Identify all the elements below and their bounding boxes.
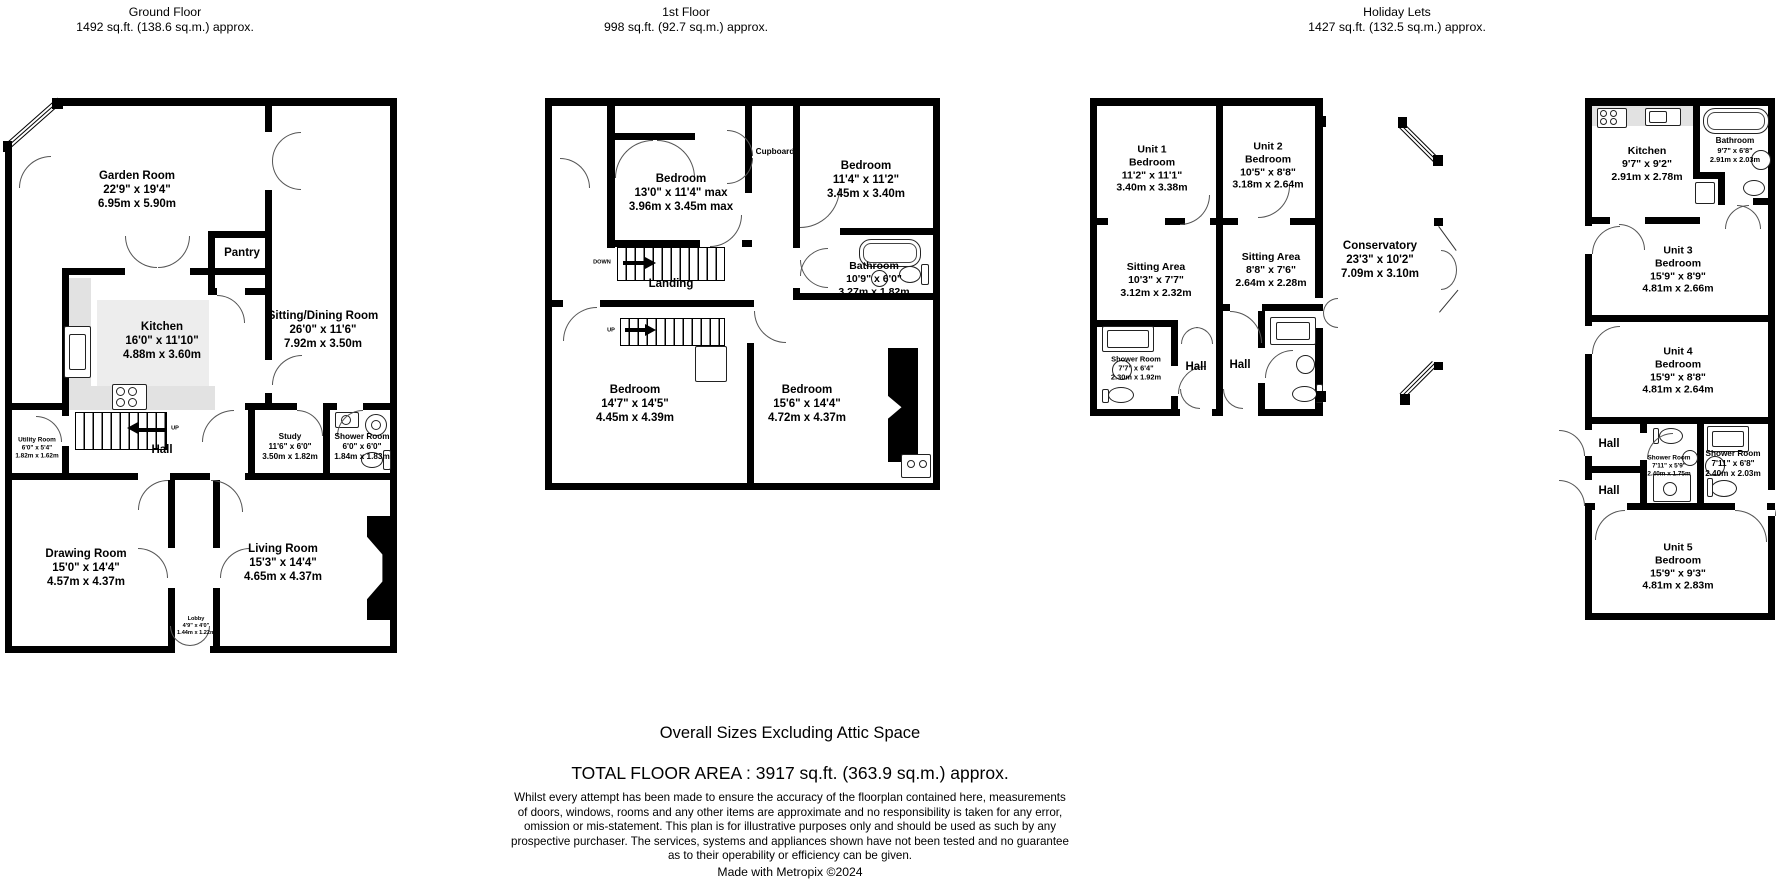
room-label-cupboard: Cupboard — [756, 147, 795, 157]
arrow-head — [645, 324, 656, 336]
wall — [840, 228, 940, 235]
fixture — [128, 398, 137, 407]
wall — [1768, 516, 1775, 620]
frame-line — [1439, 290, 1459, 313]
fixture — [1107, 330, 1149, 348]
wall — [5, 646, 170, 653]
room-label-study: Study11'6" x 6'0"3.50m x 1.82m — [262, 432, 318, 462]
first-floor-header: 1st Floor 998 sq.ft. (92.7 sq.m.) approx… — [526, 5, 846, 34]
post — [125, 98, 134, 106]
wall — [57, 98, 397, 106]
wall — [1090, 98, 1097, 416]
first-floor-plan: Bedroom13'0" x 11'4" max3.96m x 3.45m ma… — [545, 98, 940, 493]
door-arc — [800, 260, 828, 288]
fixture — [901, 454, 931, 478]
first-floor-area: 998 sq.ft. (92.7 sq.m.) approx. — [604, 20, 768, 34]
door-arc — [754, 311, 786, 343]
door-arc — [1735, 510, 1767, 542]
first-floor-title: 1st Floor — [662, 5, 710, 19]
room-label-bathroom-first: Bathroom10'9" x 6'0"3.27m x 1.82m — [838, 260, 909, 298]
ground-floor-title: Ground Floor — [129, 5, 201, 19]
wall — [137, 428, 165, 432]
wall — [545, 98, 552, 490]
fixture — [1610, 110, 1617, 117]
wall — [62, 446, 69, 473]
stairs-up-label-ground: UP — [171, 426, 179, 433]
holiday-lets-header: Holiday Lets 1427 sq.ft. (132.5 sq.m.) a… — [1237, 5, 1557, 34]
room-label-lobby: Lobby4'9" x 4'0"1.44m x 1.22m — [177, 616, 215, 636]
wall — [170, 473, 210, 480]
floorplan-page: Ground Floor 1492 sq.ft. (138.6 sq.m.) a… — [0, 0, 1776, 888]
room-label-sitting-dining: Sitting/Dining Room26'0" x 11'6"7.92m x … — [268, 309, 379, 351]
fixture — [1695, 182, 1715, 204]
room-label-unit1-bedroom: Unit 1Bedroom11'2" x 11'1"3.40m x 3.38m — [1116, 143, 1187, 194]
wall — [323, 410, 330, 473]
fixture — [1600, 118, 1607, 125]
room-label-hall-ground: Hall — [151, 443, 172, 457]
wall — [168, 480, 175, 548]
overall-sizes-note: Overall Sizes Excluding Attic Space — [480, 724, 1100, 743]
door-arc — [1559, 480, 1585, 506]
post — [1316, 116, 1326, 127]
wall — [1718, 198, 1725, 205]
wall — [1223, 304, 1230, 311]
disclaimer-line-1: Whilst every attempt has been made to en… — [480, 791, 1100, 806]
room-label-bedroom-2: Bedroom11'4" x 11'2"3.45m x 3.40m — [827, 159, 905, 201]
door-arc — [1441, 250, 1457, 270]
room-label-hall-1: Hall — [1185, 360, 1206, 374]
door-arc — [1737, 205, 1761, 229]
wall — [1223, 218, 1238, 225]
wall — [747, 343, 754, 490]
disclaimer-line-3: omission or mis-statement. This plan is … — [480, 820, 1100, 835]
room-label-shower-room-a: Shower Room7'11" x 5'9"2.40m x 1.75m — [1647, 454, 1690, 477]
bathtub — [1703, 108, 1769, 134]
door-arc — [1323, 313, 1338, 328]
wall — [1585, 503, 1595, 510]
wall — [1697, 424, 1704, 510]
door-arc — [158, 236, 190, 268]
post — [1316, 391, 1326, 402]
fixture — [1743, 180, 1765, 196]
wall — [1645, 217, 1700, 224]
room-label-unit3-bedroom: Unit 3Bedroom15'9" x 8'9"4.81m x 2.66m — [1642, 244, 1713, 295]
fixture — [1276, 322, 1310, 340]
wall — [1315, 98, 1323, 298]
wall — [793, 235, 800, 248]
wall — [1585, 417, 1775, 424]
room-label-hall-2: Hall — [1229, 358, 1250, 372]
chimney — [367, 516, 395, 620]
wall — [742, 240, 752, 247]
fixture — [116, 398, 125, 407]
fixture — [1663, 482, 1677, 496]
wall — [623, 261, 645, 265]
wall — [607, 240, 700, 247]
room-label-kitchen-holiday: Kitchen9'7" x 9'2"2.91m x 2.78m — [1611, 145, 1682, 183]
wall — [600, 300, 754, 307]
post — [3, 141, 12, 152]
door-arc — [211, 480, 243, 512]
wall — [1585, 217, 1610, 224]
wall — [190, 268, 270, 275]
wall — [1258, 383, 1265, 416]
wall — [62, 410, 69, 416]
room-label-bathroom-holiday: Bathroom9'7" x 6'8"2.91m x 2.03m — [1710, 136, 1760, 164]
wall — [208, 231, 272, 238]
fixture — [1102, 389, 1109, 403]
holiday-lets-title: Holiday Lets — [1363, 5, 1431, 19]
wall — [5, 473, 138, 480]
window — [545, 105, 593, 112]
wall — [1258, 409, 1323, 416]
door-arc — [1559, 430, 1585, 456]
door-arc — [1619, 224, 1645, 250]
wall — [168, 588, 175, 653]
room-label-sitting-area-2: Sitting Area8'8" x 7'6"2.64m x 2.28m — [1235, 251, 1306, 289]
wall — [747, 300, 754, 307]
door-arc — [1592, 326, 1620, 354]
room-label-bedroom-1: Bedroom13'0" x 11'4" max3.96m x 3.45m ma… — [629, 172, 733, 214]
total-floor-area: TOTAL FLOOR AREA : 3917 sq.ft. (363.9 sq… — [480, 763, 1100, 784]
wall — [265, 98, 272, 132]
wall — [1585, 98, 1775, 106]
fixture — [128, 387, 137, 396]
wall — [210, 646, 397, 653]
door-arc — [1265, 350, 1293, 378]
fixture — [1108, 387, 1134, 403]
door-arc — [272, 132, 301, 161]
wall — [1216, 98, 1223, 416]
wall — [545, 300, 563, 307]
fixture — [1600, 110, 1607, 117]
wall — [1585, 315, 1775, 322]
door-arc — [138, 548, 168, 578]
post — [5, 237, 12, 243]
wall — [248, 410, 255, 473]
ground-floor-plan: Garden Room22'9" x 19'4"6.95m x 5.90m Pa… — [5, 98, 397, 660]
fixture — [1296, 355, 1315, 374]
wall — [545, 98, 940, 106]
room-label-bedroom-4: Bedroom15'6" x 14'4"4.72m x 4.37m — [768, 383, 846, 425]
post — [52, 98, 63, 109]
door-arc — [217, 295, 245, 323]
wall — [1090, 409, 1180, 416]
wall — [363, 403, 397, 410]
wall — [1171, 327, 1178, 366]
room-label-pantry: Pantry — [224, 246, 260, 260]
room-label-shower-room-1: Shower Room7'7" x 6'4"2.30m x 1.92m — [1111, 354, 1161, 381]
wall — [62, 268, 125, 275]
wall — [1090, 98, 1323, 106]
holiday-lets-area: 1427 sq.ft. (132.5 sq.m.) approx. — [1308, 20, 1486, 34]
disclaimer-line-2: of doors, windows, rooms and any other i… — [480, 806, 1100, 821]
wall — [1640, 424, 1647, 433]
room-label-utility: Utility Room6'0" x 5'4"1.82m x 1.62m — [15, 436, 58, 459]
door-arc — [1595, 510, 1625, 540]
fixture — [371, 420, 381, 430]
wall — [1693, 98, 1700, 179]
wall — [5, 146, 12, 653]
wall — [1585, 613, 1775, 620]
wall — [1627, 503, 1697, 510]
fixture — [1610, 118, 1617, 125]
post — [1398, 117, 1407, 128]
door-arc — [563, 307, 597, 341]
fixture — [69, 334, 86, 370]
post — [1400, 394, 1410, 405]
wall — [793, 228, 800, 235]
fixture — [1707, 478, 1713, 497]
door-arc — [125, 236, 157, 268]
duct — [888, 348, 918, 462]
wall — [1697, 503, 1735, 510]
fixture — [921, 264, 929, 285]
wall — [245, 403, 297, 410]
wall — [625, 328, 645, 332]
window — [5, 383, 55, 390]
window — [1400, 361, 1437, 398]
wall — [793, 98, 800, 235]
fixture — [1711, 480, 1737, 497]
wall — [323, 403, 337, 410]
room-label-living-room: Living Room15'3" x 14'4"4.65m x 4.37m — [244, 542, 322, 584]
post — [1434, 362, 1443, 370]
room-label-landing: Landing — [649, 277, 694, 291]
fixture — [1292, 386, 1317, 402]
room-label-unit4-bedroom: Unit 4Bedroom15'9" x 8'8"4.81m x 2.64m — [1642, 345, 1713, 396]
frame-line — [1438, 226, 1457, 251]
metropix-credit: Made with Metropix ©2024 — [480, 865, 1100, 879]
wall — [1767, 503, 1775, 510]
door-arc — [202, 410, 234, 442]
holiday-lets-right-plan: Kitchen9'7" x 9'2"2.91m x 2.78m Bathroom… — [1585, 98, 1775, 626]
arrow-head — [127, 422, 138, 434]
room-label-unit2-bedroom: Unit 2Bedroom10'5" x 8'8"3.18m x 2.64m — [1232, 140, 1303, 191]
wall — [208, 231, 215, 295]
door-arc — [560, 158, 590, 188]
wall — [1290, 218, 1323, 225]
wall — [1585, 506, 1592, 620]
fixture — [695, 346, 727, 382]
wall — [545, 483, 940, 490]
ground-floor-header: Ground Floor 1492 sq.ft. (138.6 sq.m.) a… — [5, 5, 325, 34]
stairs — [620, 318, 725, 346]
room-label-drawing-room: Drawing Room15'0" x 14'4"4.57m x 4.37m — [45, 547, 126, 589]
door-arc — [1441, 270, 1457, 290]
room-label-bedroom-3: Bedroom14'7" x 14'5"4.45m x 4.39m — [596, 383, 674, 425]
door-arc — [1323, 298, 1338, 313]
fixture — [1712, 431, 1744, 447]
door-arc — [19, 156, 51, 188]
footer: Overall Sizes Excluding Attic Space TOTA… — [480, 724, 1100, 879]
room-label-hall-4: Hall — [1598, 484, 1619, 498]
door-arc — [1223, 389, 1243, 409]
window — [5, 376, 55, 383]
wall — [1585, 466, 1640, 473]
wall — [208, 288, 217, 295]
wall — [1585, 98, 1592, 226]
room-label-garden-room: Garden Room22'9" x 19'4"6.95m x 5.90m — [98, 169, 176, 211]
stairs-down-label: DOWN — [593, 260, 611, 267]
room-label-kitchen: Kitchen16'0" x 11'10"4.88m x 3.60m — [123, 320, 201, 362]
room-label-shower-ground: Shower Room6'0" x 6'0"1.84m x 1.83m — [334, 432, 390, 462]
arrow-head — [645, 257, 656, 269]
wall — [1262, 304, 1323, 311]
room-label-unit5-bedroom: Unit 5Bedroom15'9" x 9'3"4.81m x 2.83m — [1642, 541, 1713, 592]
wall — [245, 473, 397, 480]
wall — [1753, 198, 1775, 205]
post — [191, 98, 200, 106]
wall — [607, 100, 615, 248]
door-arc — [272, 161, 301, 190]
room-label-sitting-area-1: Sitting Area10'3" x 7'7"3.12m x 2.32m — [1120, 261, 1191, 299]
door-arc — [1196, 327, 1213, 344]
door-arc — [710, 215, 742, 247]
room-label-hall-3: Hall — [1598, 437, 1619, 451]
fixture — [1649, 111, 1667, 123]
wall — [1171, 396, 1178, 416]
post — [1433, 155, 1443, 166]
door-arc — [1592, 226, 1620, 254]
wall — [1090, 218, 1108, 225]
ground-floor-area: 1492 sq.ft. (138.6 sq.m.) approx. — [76, 20, 254, 34]
post — [1434, 218, 1443, 226]
door-arc — [1180, 195, 1210, 225]
fixture — [907, 460, 915, 468]
door-arc — [138, 480, 168, 510]
fixture — [919, 460, 927, 468]
holiday-lets-left-plan: Unit 1Bedroom11'2" x 11'1"3.40m x 3.38m … — [1090, 98, 1468, 428]
room-label-shower-room-b: Shower Room7'11" x 6'8"2.40m x 2.03m — [1705, 449, 1761, 479]
door-arc — [1180, 389, 1200, 409]
post — [5, 195, 12, 201]
disclaimer-line-5: as to their operability or efficiency ca… — [480, 849, 1100, 864]
room-label-conservatory: Conservatory23'3" x 10'2"7.09m x 3.10m — [1341, 239, 1419, 281]
stairs-up-label-first: UP — [607, 328, 615, 335]
wall — [1210, 218, 1223, 225]
fixture — [116, 387, 125, 396]
disclaimer-line-4: prospective purchaser. The services, sys… — [480, 835, 1100, 850]
door-arc — [272, 355, 302, 385]
wall — [615, 133, 695, 140]
